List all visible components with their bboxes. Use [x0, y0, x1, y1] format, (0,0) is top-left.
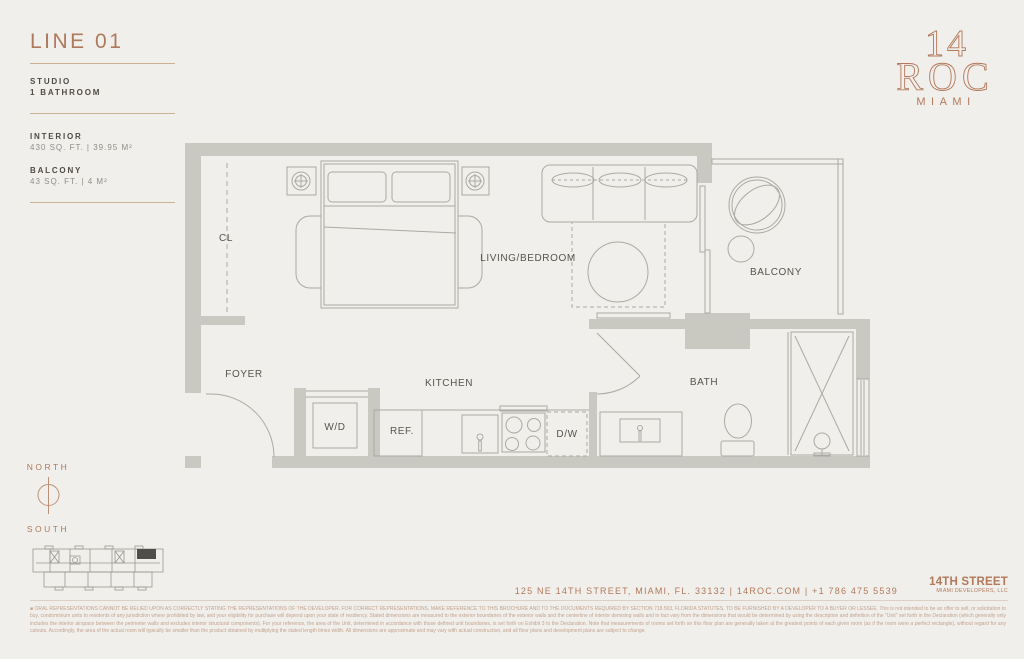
shower: [788, 332, 853, 456]
developer-logo: 14TH STREET MIAMI DEVELOPERS, LLC: [920, 576, 1008, 595]
wall-bottom: [272, 456, 870, 468]
nightstand-right: [462, 167, 489, 195]
label-balcony: BALCONY: [750, 267, 802, 278]
balcony-area: 43 SQ. FT. | 4 M²: [30, 176, 175, 187]
wall-top: [185, 143, 712, 156]
entry-door-swing: [211, 394, 274, 457]
divider: [30, 202, 175, 203]
sliding-door-panel: [700, 186, 705, 252]
wall-bath-block: [685, 313, 750, 349]
label-living-bedroom: LIVING/BEDROOM: [480, 253, 576, 264]
wall-bath-right: [856, 319, 870, 379]
balcony-side-table: [728, 236, 754, 262]
balcony-rail-top: [712, 159, 843, 164]
label-dishwasher: D/W: [556, 429, 577, 440]
wall-kitchen-bath: [589, 392, 597, 456]
lamp-icon: [294, 174, 308, 188]
floor-plan-walls: [185, 143, 870, 468]
keyplan-unit-highlight: [137, 549, 156, 559]
developer-name: 14TH STREET: [920, 576, 1008, 588]
compass: NORTH SOUTH: [27, 462, 70, 534]
brochure-page: CL LIVING/BEDROOM BALCONY FOYER KITCHEN …: [0, 0, 1024, 659]
bed: [321, 161, 458, 308]
interior-area: 430 SQ. FT. | 39.95 M²: [30, 142, 175, 153]
compass-south-label: SOUTH: [27, 524, 69, 534]
wall-closet-stub: [201, 316, 245, 325]
footer-address: 125 NE 14TH STREET, MIAMI, FL. 33132 | 1…: [398, 586, 898, 596]
compass-north-label: NORTH: [27, 462, 70, 472]
label-foyer: FOYER: [225, 369, 262, 380]
bath-window-panes: [861, 380, 864, 455]
wall-left: [185, 143, 201, 393]
balcony-lounge-chair: [727, 177, 786, 233]
14roc-logo: 14 ROC MIAMI: [868, 18, 1018, 110]
wall-balcony-stub: [697, 156, 712, 183]
wall-living-bath: [589, 319, 685, 329]
nightstand-left: [287, 167, 316, 195]
wall-wd-left: [294, 388, 306, 456]
round-table: [588, 242, 648, 302]
keyplan-elevator-icon: [50, 551, 124, 564]
wall-bath-top: [750, 319, 870, 329]
label-washer-dryer: W/D: [324, 422, 345, 433]
balcony-label: BALCONY: [30, 165, 175, 176]
interior-label: INTERIOR: [30, 131, 175, 142]
label-refrigerator: REF.: [390, 426, 414, 437]
bath-window: [857, 379, 869, 456]
label-kitchen: KITCHEN: [425, 378, 473, 389]
wall-left-stub: [185, 456, 201, 468]
sliding-door-panel: [705, 250, 710, 313]
kitchen-sink: [462, 415, 498, 453]
footer-divider: [30, 600, 1008, 601]
logo-city: MIAMI: [916, 96, 975, 108]
legal-disclaimer: ■ ORAL REPRESENTATIONS CANNOT BE RELIED …: [30, 606, 1006, 635]
lamp-icon: [468, 174, 482, 188]
wd-door-track: [306, 391, 368, 397]
unit-bathrooms: 1 BATHROOM: [30, 87, 175, 98]
label-closet: CL: [219, 233, 233, 244]
tv-console: [597, 313, 670, 318]
page-title: LINE 01: [30, 30, 175, 54]
logo-name: ROC: [896, 54, 993, 99]
bath-door-leaf: [597, 333, 640, 376]
sofa: [542, 165, 697, 222]
bath-door-swing: [597, 376, 640, 394]
label-bath: BATH: [690, 377, 718, 388]
toilet: [721, 404, 754, 456]
stove: [502, 413, 545, 452]
balcony-rail-right: [838, 159, 843, 314]
developer-subtitle: MIAMI DEVELOPERS, LLC: [920, 588, 1008, 595]
bath-vanity: [600, 412, 682, 456]
unit-info-panel: LINE 01 STUDIO 1 BATHROOM INTERIOR 430 S…: [30, 30, 175, 203]
building-keyplan: [33, 546, 163, 590]
unit-type: STUDIO: [30, 76, 175, 87]
